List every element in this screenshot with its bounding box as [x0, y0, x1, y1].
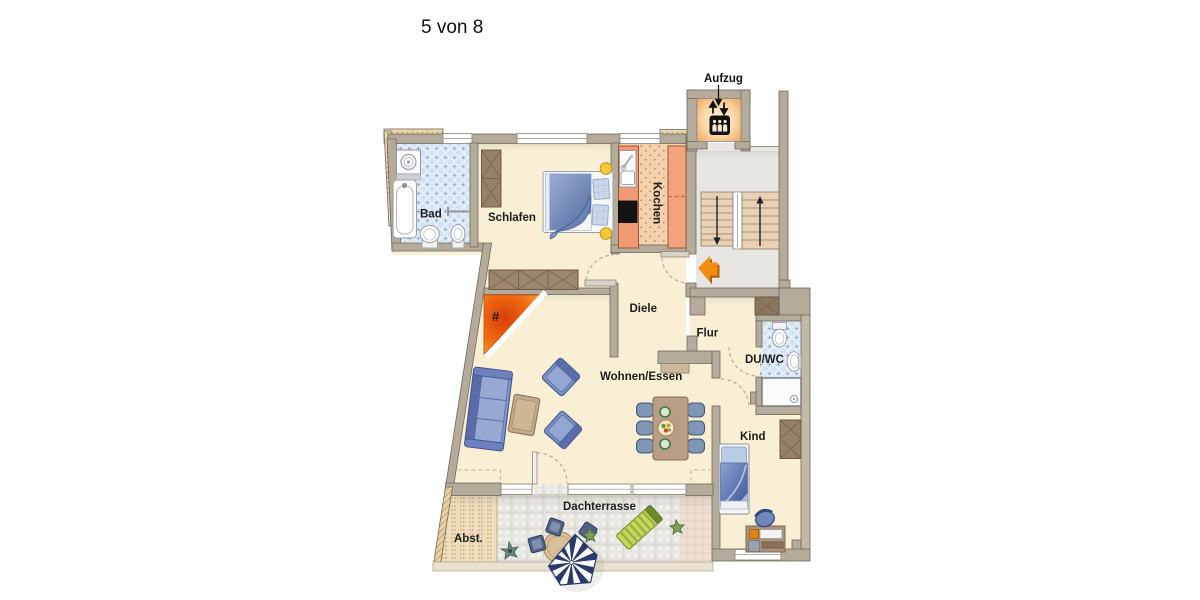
svg-text:Abst.: Abst. — [454, 533, 483, 545]
svg-text:5 von 8: 5 von 8 — [421, 17, 483, 38]
svg-text:Diele: Diele — [630, 303, 658, 315]
svg-text:Schlafen: Schlafen — [488, 212, 536, 224]
svg-text:DU/WC: DU/WC — [745, 354, 784, 366]
svg-text:Aufzug: Aufzug — [704, 73, 743, 85]
svg-text:#: # — [492, 309, 500, 324]
svg-text:Wohnen/Essen: Wohnen/Essen — [600, 371, 682, 383]
svg-text:Dachterrasse: Dachterrasse — [563, 501, 636, 513]
svg-text:Kind: Kind — [740, 431, 766, 443]
svg-text:Kochen: Kochen — [651, 182, 663, 224]
svg-text:Flur: Flur — [697, 328, 719, 340]
svg-text:Bad: Bad — [420, 209, 442, 221]
